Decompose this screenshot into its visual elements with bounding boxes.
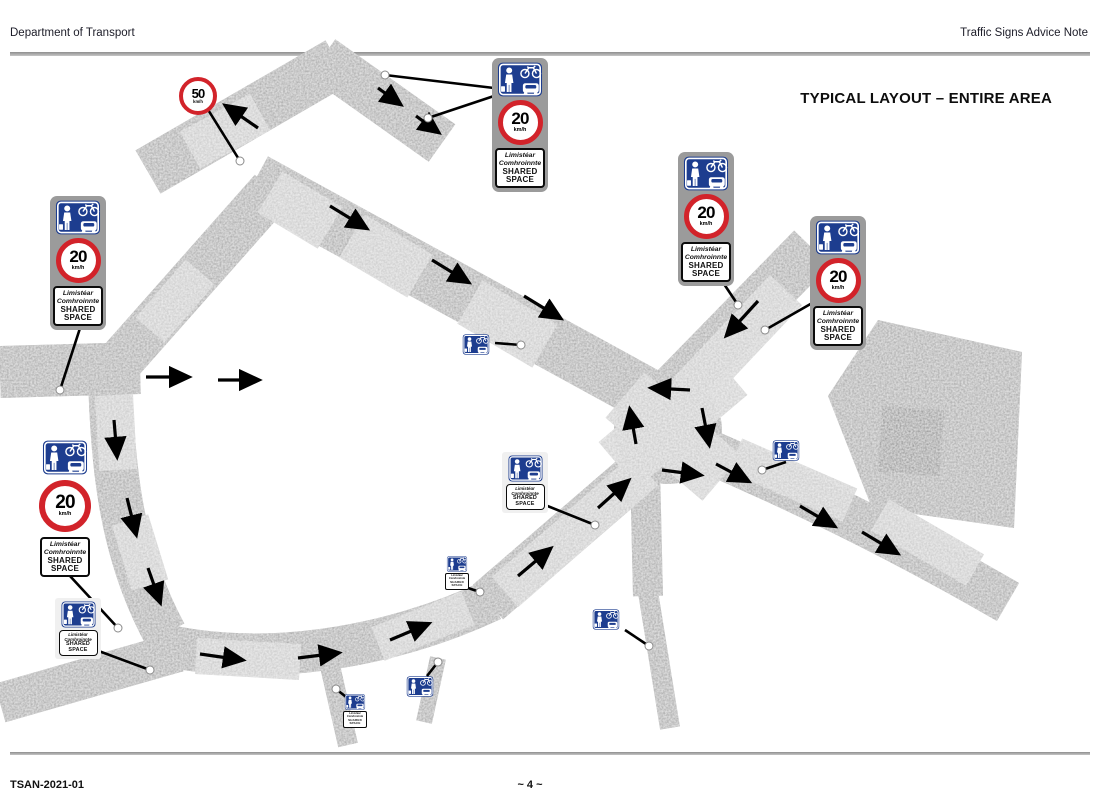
plaque-irish-1: Limistéar	[684, 246, 728, 254]
sign-cluster-shared-space-small-1: Limistéar Comhroinnte SHARED SPACE	[502, 452, 548, 513]
speed-limit-20-sign: 20 km/h	[816, 258, 861, 303]
shared-space-plaque: Limistéar Comhroinnte SHARED SPACE	[40, 537, 90, 577]
shared-space-sign	[497, 62, 543, 97]
speed-limit-20-sign: 20 km/h	[498, 100, 543, 145]
plaque-english-2: SPACE	[43, 565, 87, 574]
sign-cluster-shared-space-tiny-1: Limistéar Comhroinnte SHARED SPACE	[444, 556, 470, 590]
speed-value: 20	[69, 250, 86, 264]
speed-unit: km/h	[700, 221, 713, 227]
shared-space-plaque: Limistéar Comhroinnte SHARED SPACE	[813, 306, 863, 346]
sign-cluster-shared-space-4: 20 km/h Limistéar Comhroinnte SHARED SPA…	[810, 216, 866, 350]
sign-cluster-shared-space-small-2: Limistéar Comhroinnte SHARED SPACE	[55, 598, 101, 659]
shared-space-plaque: Limistéar Comhroinnte SHARED SPACE	[59, 630, 98, 656]
plaque-english-2: SPACE	[61, 648, 96, 654]
plaque-irish-1: Limistéar	[498, 152, 542, 160]
shared-space-sign	[507, 455, 544, 482]
sign-cluster-shared-space-3: 20 km/h Limistéar Comhroinnte SHARED SPA…	[678, 152, 734, 286]
speed-value: 50	[192, 88, 205, 99]
sign-cluster-shared-space-tiny-2: Limistéar Comhroinnte SHARED SPACE	[342, 694, 368, 728]
speed-value: 20	[697, 206, 714, 220]
shared-space-plaque: Limistéar Comhroinnte SHARED SPACE	[681, 242, 731, 282]
speed-limit-20-sign: 20 km/h	[39, 480, 91, 532]
shared-space-sign	[344, 694, 366, 710]
shared-space-sign-mini-2	[772, 440, 800, 461]
shared-space-sign	[683, 156, 729, 191]
shared-space-plaque: Limistéar Comhroinnte SHARED SPACE	[53, 286, 103, 326]
shared-space-sign-mini-4	[406, 676, 434, 697]
shared-space-plaque: Limistéar Comhroinnte SHARED SPACE	[506, 484, 545, 510]
shared-space-sign	[55, 200, 101, 235]
speed-unit: km/h	[72, 265, 85, 271]
plaque-irish-1: Limistéar	[816, 310, 860, 318]
plaque-english-2: SPACE	[816, 334, 860, 343]
plaque-english-2: SPACE	[498, 176, 542, 185]
sign-cluster-shared-space-2: 20 km/h Limistéar Comhroinnte SHARED SPA…	[50, 196, 106, 330]
speed-value: 20	[829, 270, 846, 284]
speed-limit-20-sign: 20 km/h	[684, 194, 729, 239]
speed-limit-20-sign: 20 km/h	[56, 238, 101, 283]
document-page: Department of Transport Traffic Signs Ad…	[0, 0, 1100, 800]
plaque-english-2: SPACE	[56, 314, 100, 323]
speed-unit: km/h	[193, 99, 203, 104]
shared-space-sign	[815, 220, 861, 255]
shared-space-plaque: Limistéar Comhroinnte SHARED SPACE	[343, 711, 367, 728]
sign-cluster-shared-space-5: 20 km/h Limistéar Comhroinnte SHARED SPA…	[36, 440, 94, 577]
shared-space-sign	[446, 556, 468, 572]
speed-unit: km/h	[59, 511, 72, 517]
speed-value: 20	[55, 495, 75, 511]
shared-space-sign-mini-1	[462, 334, 490, 355]
speed-unit: km/h	[832, 285, 845, 291]
speed-value: 20	[511, 112, 528, 126]
speed-unit: km/h	[514, 127, 527, 133]
plaque-english-2: SPACE	[684, 270, 728, 279]
plaque-english-2: SPACE	[508, 502, 543, 508]
plaque-english-2: SPACE	[446, 584, 468, 587]
speed-limit-50-sign: 50 km/h	[179, 77, 217, 115]
plaque-irish-1: Limistéar	[43, 541, 87, 549]
sign-cluster-shared-space-1: 20 km/h Limistéar Comhroinnte SHARED SPA…	[492, 58, 548, 192]
shared-space-plaque: Limistéar Comhroinnte SHARED SPACE	[445, 573, 469, 590]
shared-space-sign	[42, 440, 88, 475]
plaque-irish-1: Limistéar	[56, 290, 100, 298]
plaque-english-2: SPACE	[344, 722, 366, 725]
shared-space-sign-mini-3	[592, 609, 620, 630]
site-plan-map	[0, 0, 1100, 800]
shared-space-plaque: Limistéar Comhroinnte SHARED SPACE	[495, 148, 545, 188]
shared-space-sign	[60, 601, 97, 628]
